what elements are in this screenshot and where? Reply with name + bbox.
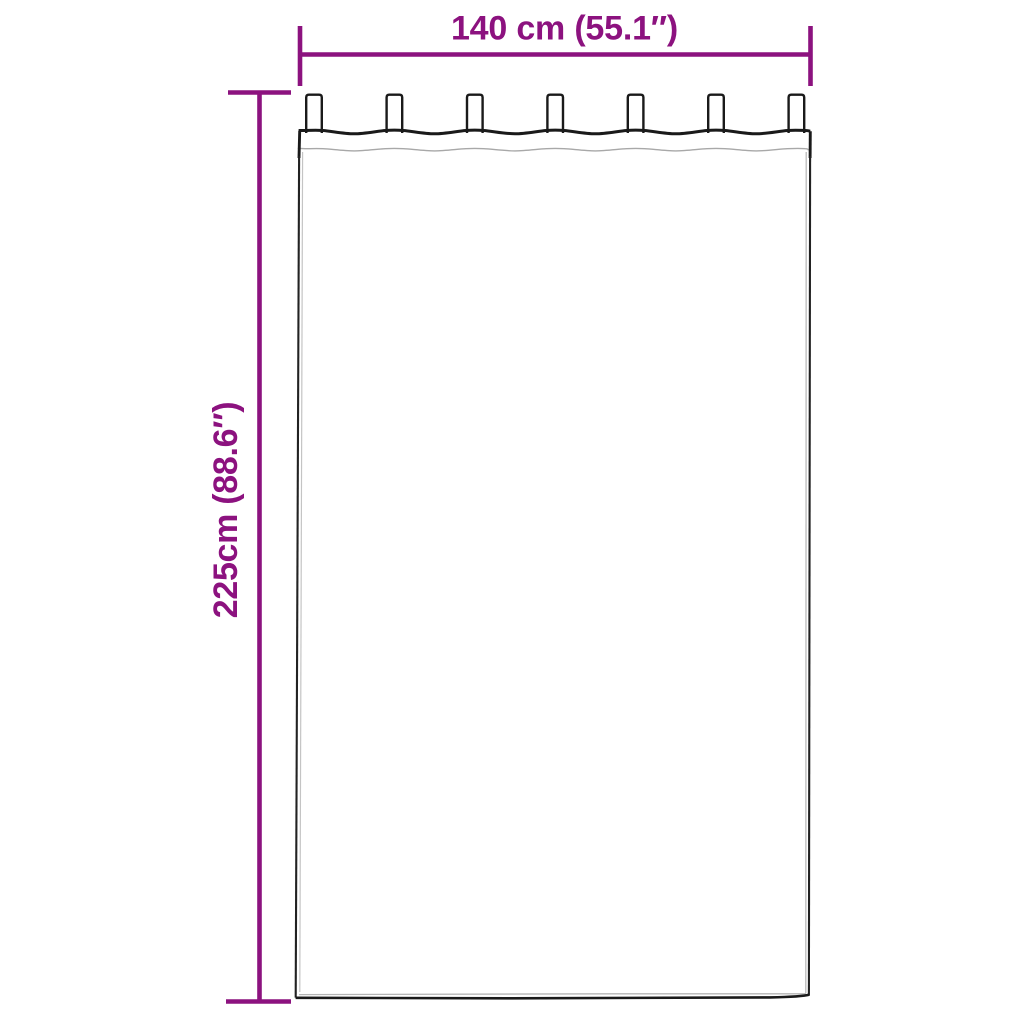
svg-text:140 cm (55.1″): 140 cm (55.1″) xyxy=(451,10,678,48)
svg-text:225cm (88.6″): 225cm (88.6″) xyxy=(207,402,245,619)
